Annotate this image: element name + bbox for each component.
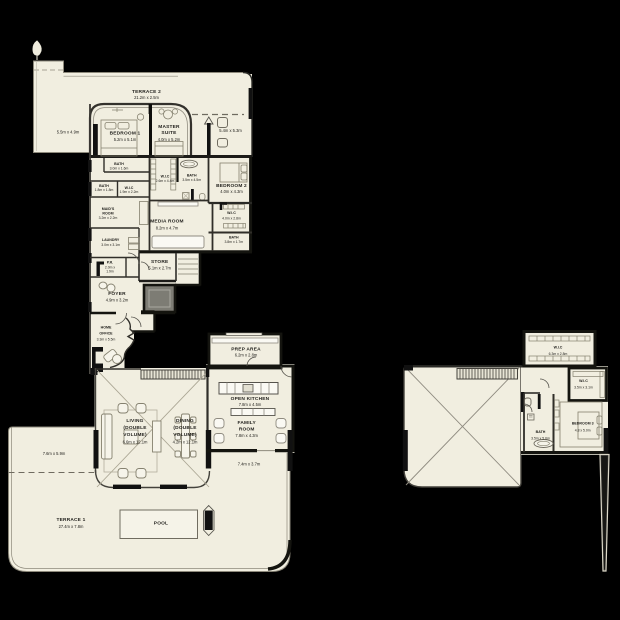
svg-text:7.8m x 4.5m: 7.8m x 4.5m (239, 402, 262, 407)
svg-text:W.I.C: W.I.C (161, 175, 170, 179)
svg-text:4.0m x 5.2m: 4.0m x 5.2m (158, 137, 181, 142)
svg-text:POOL: POOL (154, 521, 168, 527)
svg-text:5.4m x 5.3m: 5.4m x 5.3m (219, 128, 242, 133)
svg-text:BATH: BATH (187, 174, 197, 178)
svg-text:SUITE: SUITE (161, 130, 177, 136)
svg-text:ROOM: ROOM (102, 212, 113, 216)
svg-text:21.2m x 2.5m: 21.2m x 2.5m (134, 95, 159, 100)
svg-text:HOME: HOME (101, 326, 112, 330)
svg-text:VOLUME): VOLUME) (123, 432, 147, 438)
svg-text:LAUNDRY: LAUNDRY (102, 238, 120, 242)
svg-text:5.2m x 5.1m: 5.2m x 5.1m (114, 137, 137, 142)
svg-text:7.8m x 4.3m: 7.8m x 4.3m (235, 433, 258, 438)
svg-text:VOLUME): VOLUME) (173, 432, 197, 438)
svg-text:STORE: STORE (151, 259, 169, 265)
svg-text:3.5m x 5.6m: 3.5m x 5.6m (531, 436, 550, 440)
svg-text:DINING: DINING (176, 418, 194, 424)
svg-text:4.0m x 4.3m: 4.0m x 4.3m (220, 189, 243, 194)
svg-text:BEDROOM 3: BEDROOM 3 (572, 422, 594, 426)
svg-text:1.9m: 1.9m (106, 270, 114, 274)
svg-text:6.2m x 2.8m: 6.2m x 2.8m (235, 353, 258, 358)
svg-text:P.R.: P.R. (107, 261, 114, 265)
svg-text:BATH: BATH (114, 162, 124, 166)
svg-text:PREP AREA: PREP AREA (231, 346, 261, 352)
svg-text:3.8m x 1.7m: 3.8m x 1.7m (224, 240, 243, 244)
svg-text:3.0m x 1.6m: 3.0m x 1.6m (110, 167, 129, 171)
svg-text:LIVING: LIVING (126, 418, 143, 424)
svg-text:7.4m x 3.7m: 7.4m x 3.7m (238, 462, 261, 467)
svg-text:7.6m x 5.9m: 7.6m x 5.9m (43, 451, 66, 456)
svg-text:3.5m x 4.5m: 3.5m x 4.5m (182, 178, 201, 182)
svg-text:1.9m x 2.2m: 1.9m x 2.2m (120, 190, 139, 194)
svg-text:MAID'S: MAID'S (102, 207, 115, 211)
svg-text:OPEN KITCHEN: OPEN KITCHEN (231, 396, 270, 402)
svg-text:MEDIA ROOM: MEDIA ROOM (150, 219, 184, 225)
svg-text:FOYER: FOYER (108, 291, 126, 297)
svg-text:BEDROOM 1: BEDROOM 1 (110, 131, 141, 137)
svg-text:W.I.C: W.I.C (227, 211, 236, 215)
svg-text:FAMILY: FAMILY (238, 420, 257, 426)
svg-text:4.2m x 12.1m: 4.2m x 12.1m (173, 440, 198, 445)
svg-text:4.9m x 3.2m: 4.9m x 3.2m (106, 297, 129, 302)
svg-text:3.0m x 3.1m: 3.0m x 3.1m (101, 243, 120, 247)
svg-text:8.2m x 4.7m: 8.2m x 4.7m (156, 226, 179, 231)
svg-text:3.5m x 3.1m: 3.5m x 3.1m (574, 385, 593, 389)
svg-text:MASTER: MASTER (158, 124, 180, 130)
svg-text:3.3m x 5.5m: 3.3m x 5.5m (97, 338, 116, 342)
svg-text:6.6m x 12.1m: 6.6m x 12.1m (123, 440, 148, 445)
svg-text:3.2m x 2.2m: 3.2m x 2.2m (99, 216, 118, 220)
svg-text:4.0m x 2.8m: 4.0m x 2.8m (222, 217, 241, 221)
svg-text:BATH: BATH (536, 430, 546, 434)
svg-text:(DOUBLE: (DOUBLE (123, 425, 147, 431)
svg-text:27.4m x 7.8m: 27.4m x 7.8m (59, 524, 84, 529)
svg-text:1.8m x 1.8m: 1.8m x 1.8m (95, 188, 114, 192)
svg-text:5.1m x 2.7m: 5.1m x 2.7m (148, 266, 171, 271)
svg-text:ROOM: ROOM (239, 427, 255, 433)
svg-text:5.5m x 4.9m: 5.5m x 4.9m (57, 130, 80, 135)
svg-text:BATH: BATH (229, 236, 239, 240)
svg-text:TERRACE 1: TERRACE 1 (57, 517, 86, 523)
svg-text:2.6m x 4.4m: 2.6m x 4.4m (156, 179, 175, 183)
svg-text:W.I.C: W.I.C (554, 346, 563, 350)
svg-text:(DOUBLE: (DOUBLE (173, 425, 197, 431)
svg-text:OFFICE: OFFICE (99, 332, 113, 336)
svg-text:W.I.C: W.I.C (579, 379, 588, 383)
svg-text:6.3m x 2.8m: 6.3m x 2.8m (549, 352, 568, 356)
svg-text:4.8 x 5.0m: 4.8 x 5.0m (575, 429, 591, 433)
